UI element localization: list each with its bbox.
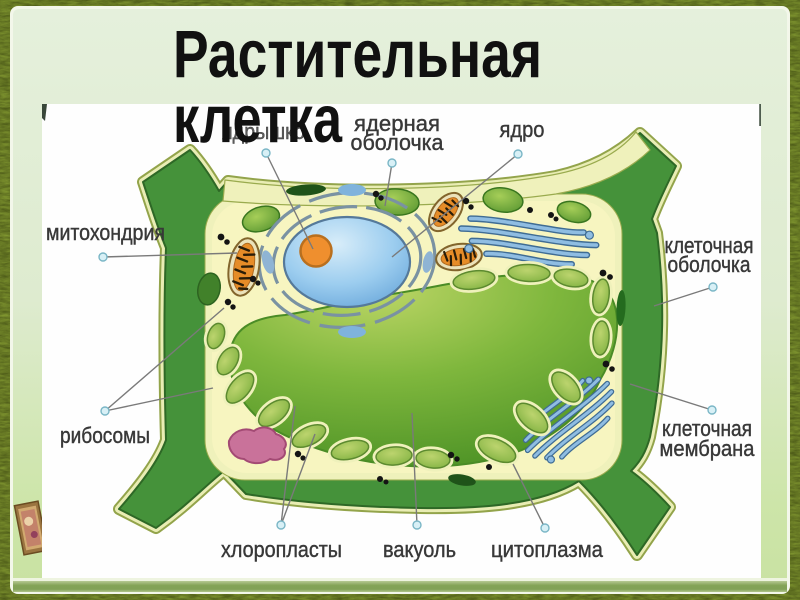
svg-text:оболочка: оболочка (351, 130, 445, 155)
svg-text:цитоплазма: цитоплазма (491, 537, 604, 562)
svg-text:мембрана: мембрана (660, 436, 756, 461)
svg-text:рибосомы: рибосомы (60, 423, 150, 448)
svg-text:вакуоль: вакуоль (383, 537, 456, 562)
svg-text:ядро: ядро (500, 117, 545, 142)
svg-text:Растительная: Растительная (173, 17, 542, 92)
svg-text:митохондрия: митохондрия (46, 220, 165, 245)
svg-text:клетка: клетка (173, 82, 343, 157)
svg-text:оболочка: оболочка (668, 252, 752, 277)
svg-text:хлоропласты: хлоропласты (221, 537, 342, 562)
